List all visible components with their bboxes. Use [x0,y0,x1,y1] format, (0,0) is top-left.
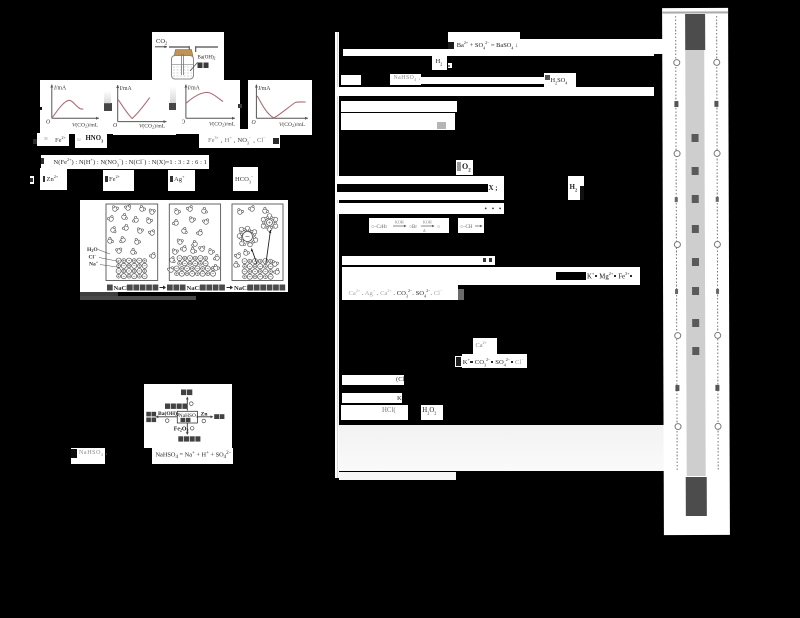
svg-text:I/mA: I/mA [118,86,132,92]
svg-text:○–C2H5: ○–C2H5 [371,224,387,229]
svg-text:I/mA: I/mA [186,85,200,91]
svg-text:V(CO2)/mL: V(CO2)/mL [279,120,306,127]
svg-text:O: O [113,123,118,129]
svg-text:V(CO2)/mL: V(CO2)/mL [72,121,99,128]
svg-text:NaHSO4 = Na+ + H+ + SO42−: NaHSO4 = Na+ + H+ + SO42− [155,451,231,460]
svg-text:NaCl: NaCl [186,285,201,292]
svg-text:KOH: KOH [395,219,404,224]
svg-text:Zn: Zn [200,411,208,417]
svg-text:○: ○ [437,224,440,229]
svg-text:O: O [46,119,51,125]
svg-text:CO2: CO2 [156,38,167,46]
svg-text:Δ: Δ [423,227,426,232]
svg-text:O: O [182,119,186,125]
svg-text:○–CH: ○–CH [460,224,473,229]
svg-text:V(CO2)/mL: V(CO2)/mL [139,122,166,129]
svg-text:Ba(OH)2: Ba(OH)2 [198,55,216,60]
svg-text:V(CO2)/mL: V(CO2)/mL [209,120,236,127]
svg-text:Na+: Na+ [89,260,99,268]
svg-text:KOH: KOH [423,219,432,224]
svg-text:○Br: ○Br [409,224,417,229]
svg-text:O: O [251,119,256,125]
svg-text:NaCl: NaCl [234,285,249,292]
svg-text:I/mA: I/mA [53,85,67,91]
svg-text:I/mA: I/mA [257,86,271,92]
svg-text:H2O: H2O [87,247,98,253]
svg-text:Fe2O3: Fe2O3 [173,426,188,432]
svg-text:Ba(OH)2: Ba(OH)2 [158,410,179,417]
svg-text:NaCl: NaCl [113,285,128,292]
